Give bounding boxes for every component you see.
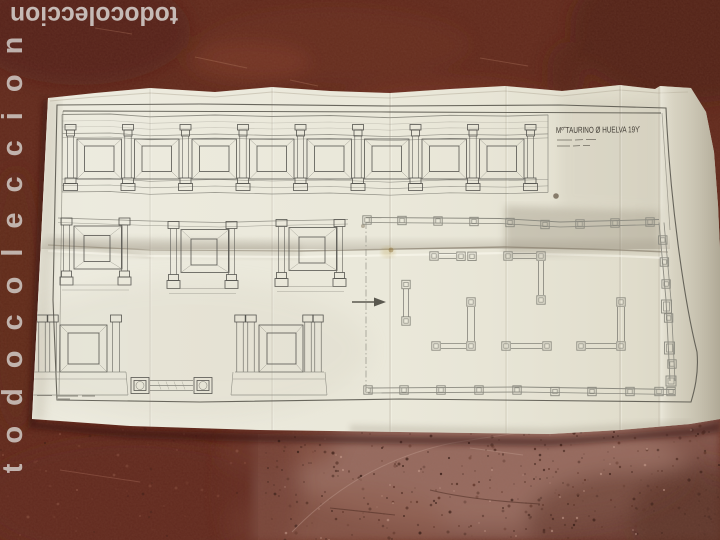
svg-text:Mº˜TAURINO Ø HUELVA 19ϒ: Mº˜TAURINO Ø HUELVA 19ϒ bbox=[556, 124, 640, 135]
svg-text:todocoleccion: todocoleccion bbox=[0, 17, 29, 474]
svg-text:todocoleccion: todocoleccion bbox=[10, 1, 178, 31]
